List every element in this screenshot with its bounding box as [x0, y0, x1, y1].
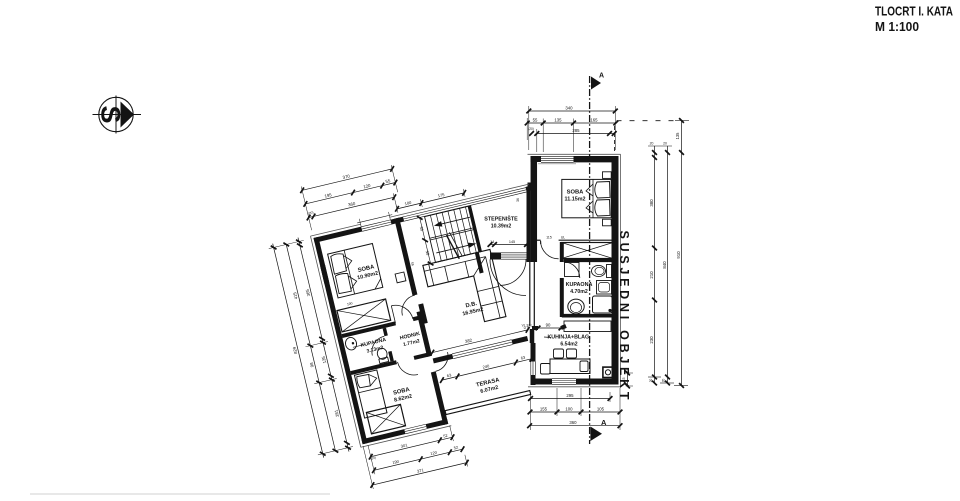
svg-text:36: 36 — [516, 198, 520, 202]
svg-text:210: 210 — [649, 271, 654, 279]
svg-text:STEPENIŠTE: STEPENIŠTE — [484, 215, 518, 223]
svg-text:SOBA: SOBA — [567, 190, 585, 196]
svg-text:295: 295 — [566, 393, 574, 398]
svg-text:KUHINJA+BLAG.: KUHINJA+BLAG. — [547, 335, 591, 341]
svg-text:840: 840 — [662, 261, 667, 269]
svg-text:15: 15 — [622, 378, 626, 382]
svg-text:KUPAONA: KUPAONA — [566, 282, 593, 288]
svg-text:14: 14 — [490, 240, 494, 244]
svg-text:20: 20 — [650, 142, 654, 146]
svg-text:10.39m2: 10.39m2 — [491, 224, 512, 230]
svg-text:20: 20 — [663, 142, 667, 146]
svg-text:105: 105 — [597, 406, 605, 411]
svg-text:145: 145 — [509, 240, 515, 244]
svg-text:90: 90 — [546, 322, 551, 327]
svg-text:910: 910 — [676, 251, 681, 259]
svg-text:135: 135 — [554, 117, 562, 122]
svg-text:M 1:100: M 1:100 — [875, 20, 919, 34]
svg-text:100: 100 — [565, 406, 573, 411]
svg-text:S: S — [96, 105, 126, 123]
svg-text:380: 380 — [649, 199, 654, 207]
svg-text:340: 340 — [565, 105, 573, 110]
svg-text:155: 155 — [540, 406, 548, 411]
svg-text:TLOCRT I. KATA: TLOCRT I. KATA — [875, 5, 953, 19]
svg-text:360: 360 — [569, 420, 577, 425]
svg-text:55: 55 — [533, 117, 538, 122]
svg-text:20: 20 — [662, 379, 666, 383]
svg-text:165: 165 — [590, 117, 598, 122]
svg-text:11.15m2: 11.15m2 — [565, 197, 586, 203]
svg-text:135: 135 — [675, 132, 680, 140]
svg-text:UL: UL — [561, 236, 565, 240]
svg-text:20: 20 — [649, 379, 653, 383]
svg-text:6.54m2: 6.54m2 — [560, 342, 577, 348]
svg-text:115: 115 — [546, 236, 552, 240]
svg-text:230: 230 — [649, 336, 654, 344]
svg-text:A: A — [599, 73, 604, 80]
svg-text:4.70m2: 4.70m2 — [570, 289, 588, 295]
